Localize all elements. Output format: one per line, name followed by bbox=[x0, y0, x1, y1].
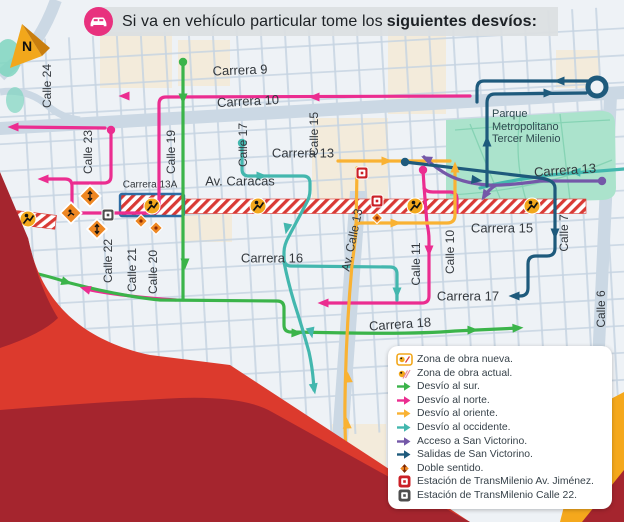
legend-item: Estación de TransMilenio Av. Jiménez. bbox=[396, 475, 604, 488]
legend-item-label: Zona de obra nueva. bbox=[417, 354, 513, 365]
legend-item-label: Doble sentido. bbox=[417, 463, 483, 474]
legend-item: Zona de obra nueva. bbox=[396, 353, 604, 366]
legend-item: Estación de TransMilenio Calle 22. bbox=[396, 489, 604, 502]
legend-item: Desvío al occidente. bbox=[396, 421, 604, 434]
station-gray-icon bbox=[396, 489, 413, 502]
legend-item-label: Desvío al oriente. bbox=[417, 408, 498, 419]
page-title: Si va en vehículo particular tome los si… bbox=[96, 7, 558, 36]
legend-item-label: Estación de TransMilenio Av. Jiménez. bbox=[417, 476, 594, 487]
worker-icon bbox=[144, 198, 160, 214]
car-icon bbox=[84, 7, 113, 36]
legend-item: Acceso a San Victorino. bbox=[396, 435, 604, 448]
detour-map-infographic: Carrera 9Carrera 10Carrera 13Av. Caracas… bbox=[0, 0, 624, 522]
legend-item-label: Desvío al occidente. bbox=[417, 422, 511, 433]
worker-icon bbox=[407, 198, 423, 214]
route-endpoint-dot bbox=[238, 139, 246, 147]
arrow-purple-icon bbox=[396, 435, 413, 448]
compass: N bbox=[8, 16, 58, 72]
legend-item: Desvío al norte. bbox=[396, 394, 604, 407]
station-av-jimenez-icon bbox=[371, 195, 383, 207]
route-endpoint-dot bbox=[179, 58, 187, 66]
zona-nueva-icon bbox=[396, 353, 413, 366]
title-bold: siguientes desvíos: bbox=[387, 13, 537, 31]
legend-item: Salidas de San Victorino. bbox=[396, 448, 604, 461]
route-endpoint-dot bbox=[401, 158, 409, 166]
legend-item-label: Acceso a San Victorino. bbox=[417, 436, 527, 447]
worker-icon bbox=[250, 198, 266, 214]
roundabout-loop bbox=[588, 78, 606, 96]
station-av-jimenez-icon bbox=[356, 167, 368, 179]
compass-n-label: N bbox=[22, 38, 32, 54]
route-endpoint-dot bbox=[419, 166, 427, 174]
route-endpoint-dot bbox=[598, 177, 606, 185]
doble-icon bbox=[396, 462, 413, 475]
arrow-teal-icon bbox=[396, 421, 413, 434]
legend-panel: Zona de obra nueva.Zona de obra actual.D… bbox=[388, 346, 612, 509]
legend-item: Doble sentido. bbox=[396, 462, 604, 475]
legend-item: Desvío al oriente. bbox=[396, 407, 604, 420]
station-calle22-icon bbox=[102, 209, 114, 221]
legend-item-label: Salidas de San Victorino. bbox=[417, 449, 533, 460]
worker-icon bbox=[20, 211, 36, 227]
legend-item-label: Estación de TransMilenio Calle 22. bbox=[417, 490, 577, 501]
title-regular: Si va en vehículo particular tome los bbox=[122, 13, 383, 31]
legend-item-label: Desvío al sur. bbox=[417, 381, 480, 392]
arrow-blue-icon bbox=[396, 448, 413, 461]
legend-item: Desvío al sur. bbox=[396, 380, 604, 393]
arrow-green-icon bbox=[396, 380, 413, 393]
worker-icon bbox=[524, 198, 540, 214]
legend-item-label: Desvío al norte. bbox=[417, 395, 490, 406]
car-glyph bbox=[89, 12, 108, 31]
park-label: Parque Metropolitano Tercer Milenio bbox=[492, 108, 560, 146]
legend-item-label: Zona de obra actual. bbox=[417, 368, 512, 379]
green-area bbox=[6, 87, 24, 113]
zona-actual-icon bbox=[396, 367, 413, 380]
arrow-yellow-icon bbox=[396, 407, 413, 420]
route-endpoint-dot bbox=[107, 126, 115, 134]
arrow-pink-icon bbox=[396, 394, 413, 407]
station-red-icon bbox=[396, 475, 413, 488]
legend-item: Zona de obra actual. bbox=[396, 367, 604, 380]
